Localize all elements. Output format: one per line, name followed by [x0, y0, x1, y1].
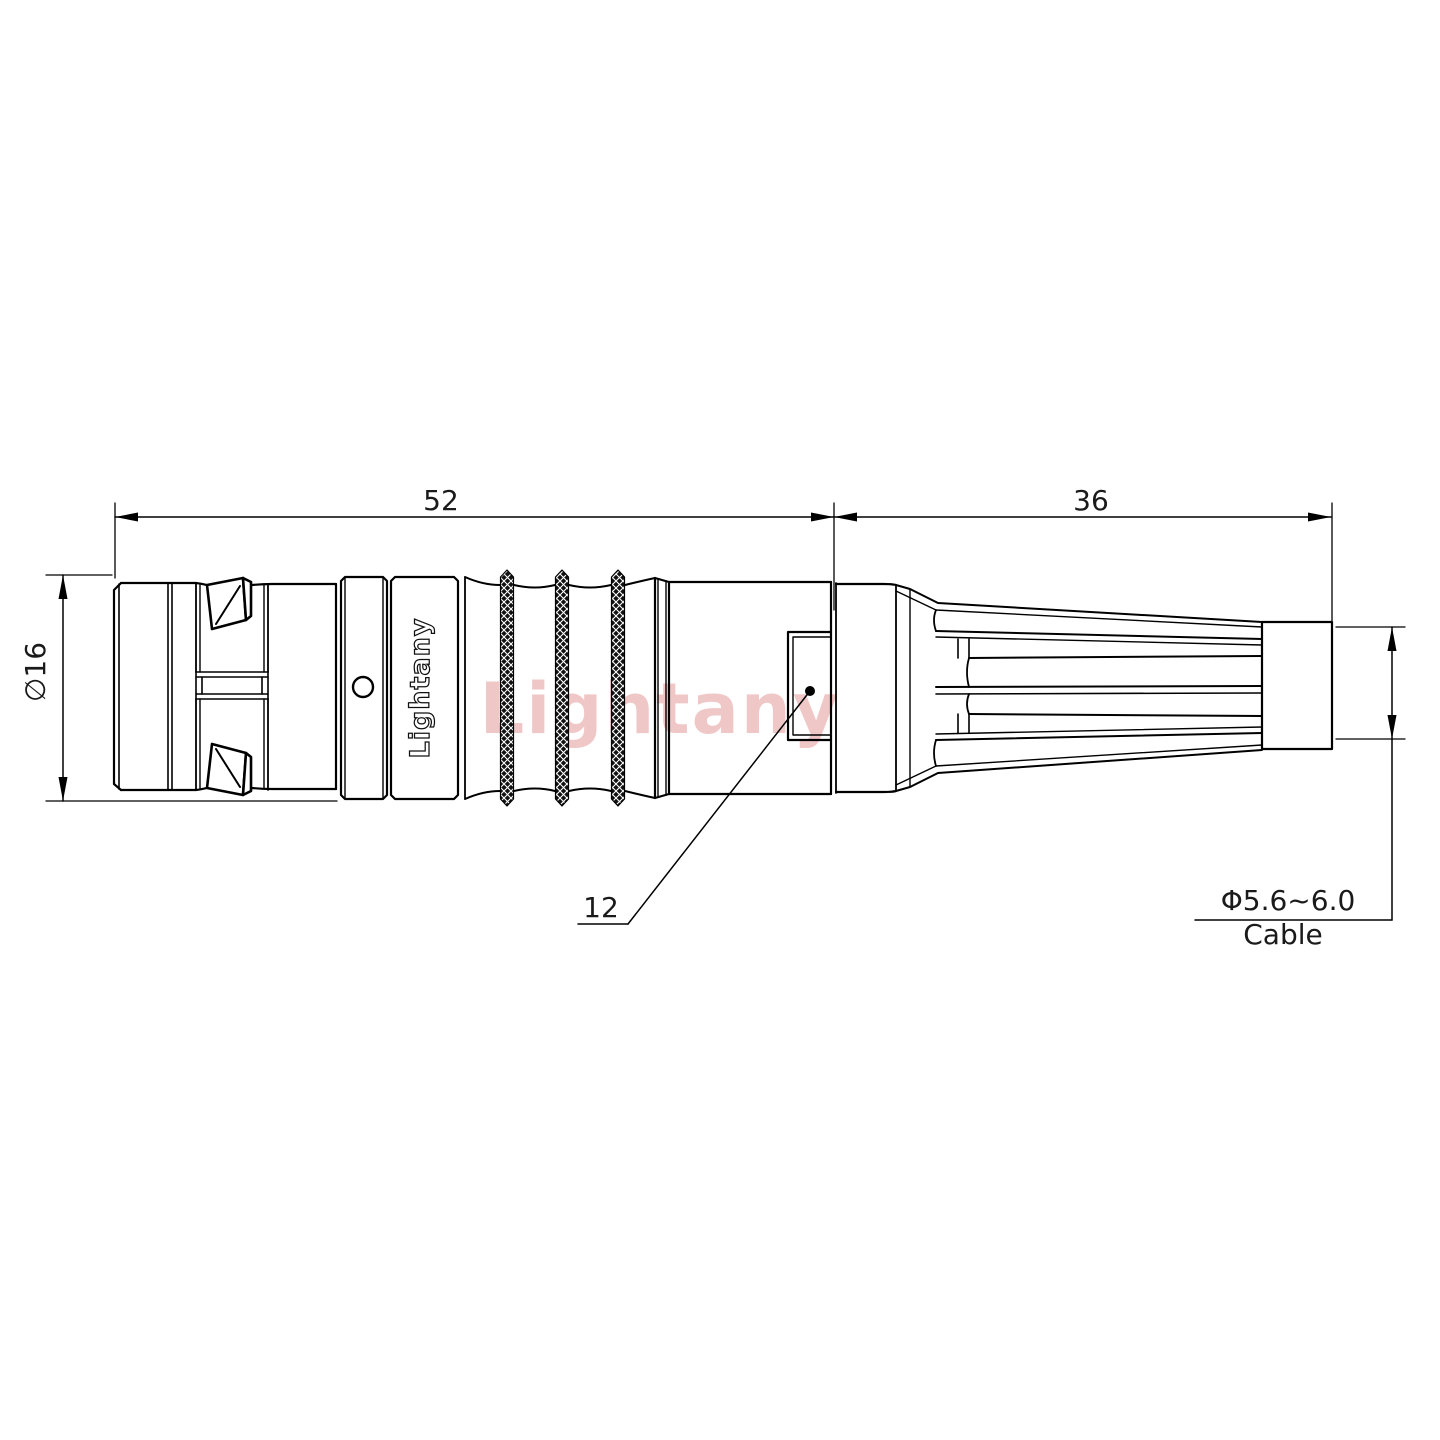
dim-label-outer-diameter: ∅16	[19, 642, 52, 702]
dim-label-rear-length: 36	[1073, 484, 1109, 517]
watermark-text: Lightany	[480, 668, 841, 750]
drawing-page: Lightany	[0, 0, 1440, 1440]
dim-label-cable-diameter: Φ5.6~6.0	[1221, 884, 1356, 917]
bayonet-key-top	[207, 578, 251, 629]
shell-marking-text: Lightany	[405, 618, 436, 759]
technical-drawing: Lightany	[0, 0, 1440, 1440]
knurl-strip	[501, 570, 514, 806]
dim-label-front-length: 52	[423, 484, 459, 517]
dim-label-cable: Cable	[1243, 918, 1323, 951]
knurl-strip	[612, 570, 625, 806]
bayonet-key-bottom	[207, 744, 251, 795]
knurl-strip	[556, 570, 569, 806]
dim-label-rear-diameter: 12	[583, 891, 619, 924]
